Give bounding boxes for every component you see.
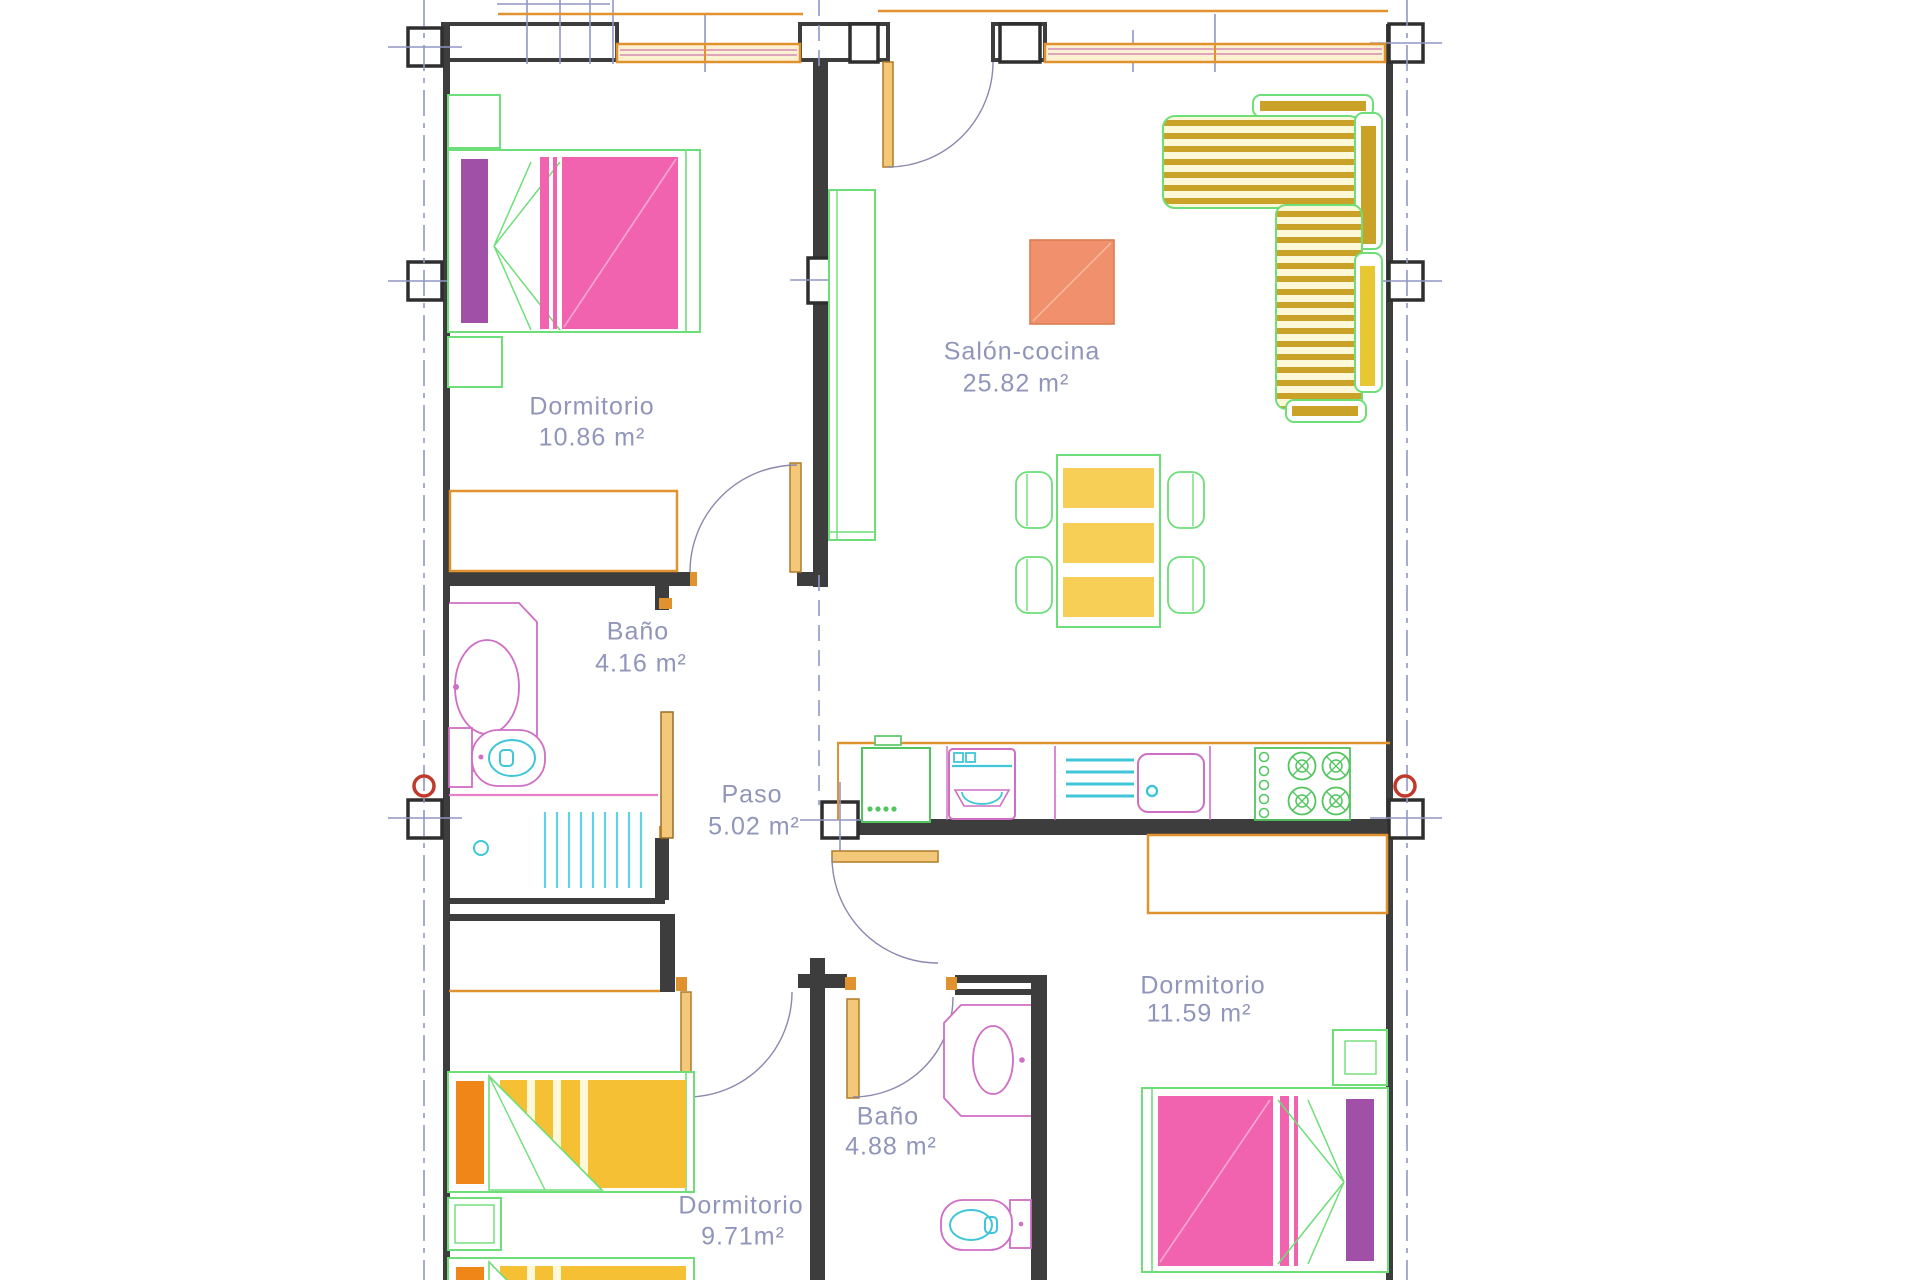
- room-label-dormitorio-2-name: Dormitorio: [1140, 972, 1265, 1001]
- stove: [1255, 748, 1350, 820]
- room-label-bano-2-name: Baño: [857, 1103, 919, 1132]
- chair: [1168, 557, 1204, 613]
- chair: [1016, 472, 1052, 528]
- wall-salon-south: [858, 819, 1390, 835]
- door-bathroom2: [845, 977, 957, 1098]
- single-bed-2: [448, 1258, 694, 1280]
- pillow: [1346, 1099, 1374, 1261]
- pillow: [461, 159, 488, 323]
- room-label-bano-1-area: 4.16 m²: [595, 650, 687, 679]
- kitchen-appliances: [837, 736, 1390, 822]
- nightstand: [448, 95, 500, 148]
- room-label-dormitorio-3-area: 9.71m²: [701, 1223, 785, 1252]
- chair: [1016, 557, 1052, 613]
- drainboard: [1066, 760, 1134, 796]
- bedroom2-furniture: [1142, 835, 1388, 1272]
- sofa: [1163, 95, 1382, 422]
- shelf-unit: [829, 190, 875, 540]
- bedroom3-furniture: [448, 991, 694, 1280]
- riser-right: [1395, 776, 1415, 796]
- window-salon: [1045, 44, 1385, 62]
- double-bed-1: [448, 150, 700, 332]
- pillow: [456, 1267, 484, 1280]
- wall-bath2-east: [1031, 975, 1047, 1280]
- single-bed-1: [448, 1072, 694, 1192]
- burner: [1289, 753, 1316, 780]
- room-label-paso-name: Paso: [722, 781, 783, 810]
- burner: [1289, 788, 1316, 815]
- wall-partition-lower: [813, 303, 828, 587]
- room-label-salon-cocina-name: Salón-cocina: [944, 338, 1101, 367]
- fridge: [862, 736, 930, 822]
- coffee-table: [1030, 240, 1114, 324]
- wall-partition-upper: [813, 60, 828, 258]
- door-paso: [832, 851, 938, 963]
- bedroom1-furniture: [448, 95, 700, 571]
- shower: [449, 795, 658, 888]
- bathroom2-fixtures: [941, 1005, 1031, 1250]
- salon-furniture: [829, 95, 1382, 627]
- room-label-bano-1-name: Baño: [607, 618, 669, 647]
- toilet: [941, 1200, 1031, 1250]
- wall-corridor: [810, 958, 825, 1280]
- burner: [1323, 788, 1350, 815]
- wardrobe: [1148, 835, 1387, 913]
- windows: [498, 11, 1388, 62]
- room-label-dormitorio-1-name: Dormitorio: [529, 393, 654, 422]
- burner: [1323, 753, 1350, 780]
- wall-bath1-south: [443, 898, 665, 904]
- chair: [1168, 472, 1204, 528]
- room-label-bano-2-area: 4.88 m²: [845, 1133, 937, 1162]
- wall-bedroom1-south: [450, 572, 690, 586]
- sink: [944, 1005, 1031, 1116]
- room-label-dormitorio-1-area: 10.86 m²: [539, 424, 646, 453]
- window-bedroom1: [617, 44, 800, 62]
- double-bed-2: [1142, 1088, 1388, 1272]
- nightstand: [448, 1198, 501, 1250]
- nightstand: [448, 337, 502, 387]
- room-label-dormitorio-3-name: Dormitorio: [678, 1192, 803, 1221]
- nightstand: [1333, 1030, 1387, 1085]
- dresser: [450, 491, 677, 571]
- dining-set: [1016, 455, 1204, 627]
- door-entrance: [883, 62, 993, 167]
- pillow: [456, 1081, 484, 1184]
- room-label-salon-cocina-area: 25.82 m²: [963, 370, 1070, 399]
- door-bedroom1: [690, 463, 801, 586]
- room-label-paso-area: 5.02 m²: [708, 813, 800, 842]
- floor-plan-canvas: Dormitorio 10.86 m² Salón-cocina 25.82 m…: [0, 0, 1920, 1280]
- washing-machine: [949, 749, 1015, 819]
- toilet: [449, 728, 545, 787]
- floor-plan-drawing: [0, 0, 1920, 1280]
- kitchen-sink: [1138, 754, 1204, 812]
- room-label-dormitorio-2-area: 11.59 m²: [1147, 1000, 1252, 1029]
